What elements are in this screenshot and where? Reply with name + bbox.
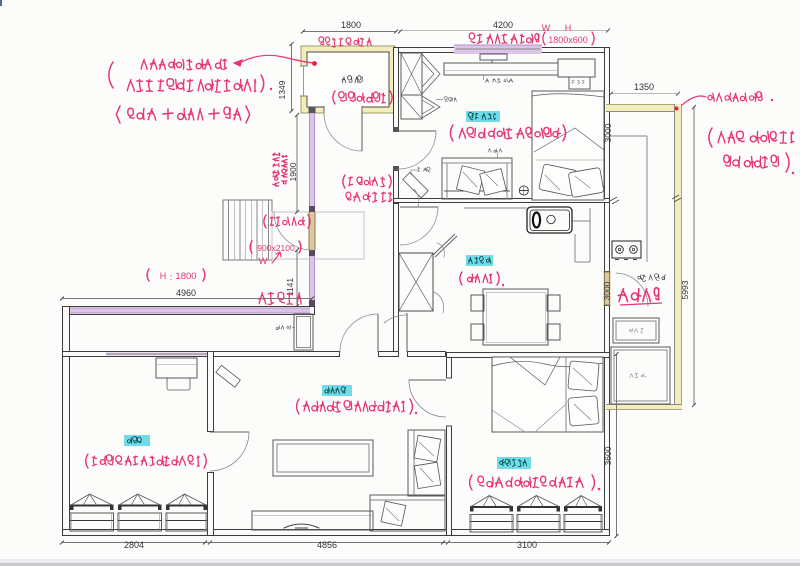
svg-text:900x2100: 900x2100 <box>257 243 295 253</box>
svg-text:1349: 1349 <box>277 80 287 99</box>
svg-text:5993: 5993 <box>680 280 690 299</box>
svg-text:H: H <box>565 23 572 33</box>
svg-text:1800: 1800 <box>341 20 361 30</box>
svg-text:2804: 2804 <box>124 540 144 550</box>
svg-text:3000: 3000 <box>603 123 613 142</box>
svg-text:1900: 1900 <box>288 162 298 181</box>
svg-text:W: W <box>542 23 551 33</box>
svg-text:W: W <box>259 256 268 267</box>
svg-text:1350: 1350 <box>634 82 654 92</box>
svg-text:4960: 4960 <box>176 288 196 298</box>
svg-text:4200: 4200 <box>493 20 513 30</box>
svg-text:3600: 3600 <box>603 446 613 465</box>
svg-text:3100: 3100 <box>517 540 537 550</box>
svg-text:1800: 1800 <box>175 271 196 282</box>
svg-text:H: H <box>160 271 167 281</box>
svg-text:3000: 3000 <box>602 281 612 300</box>
svg-text:4856: 4856 <box>317 540 337 550</box>
svg-text::: : <box>170 272 173 282</box>
svg-text:1800x600: 1800x600 <box>548 35 588 45</box>
